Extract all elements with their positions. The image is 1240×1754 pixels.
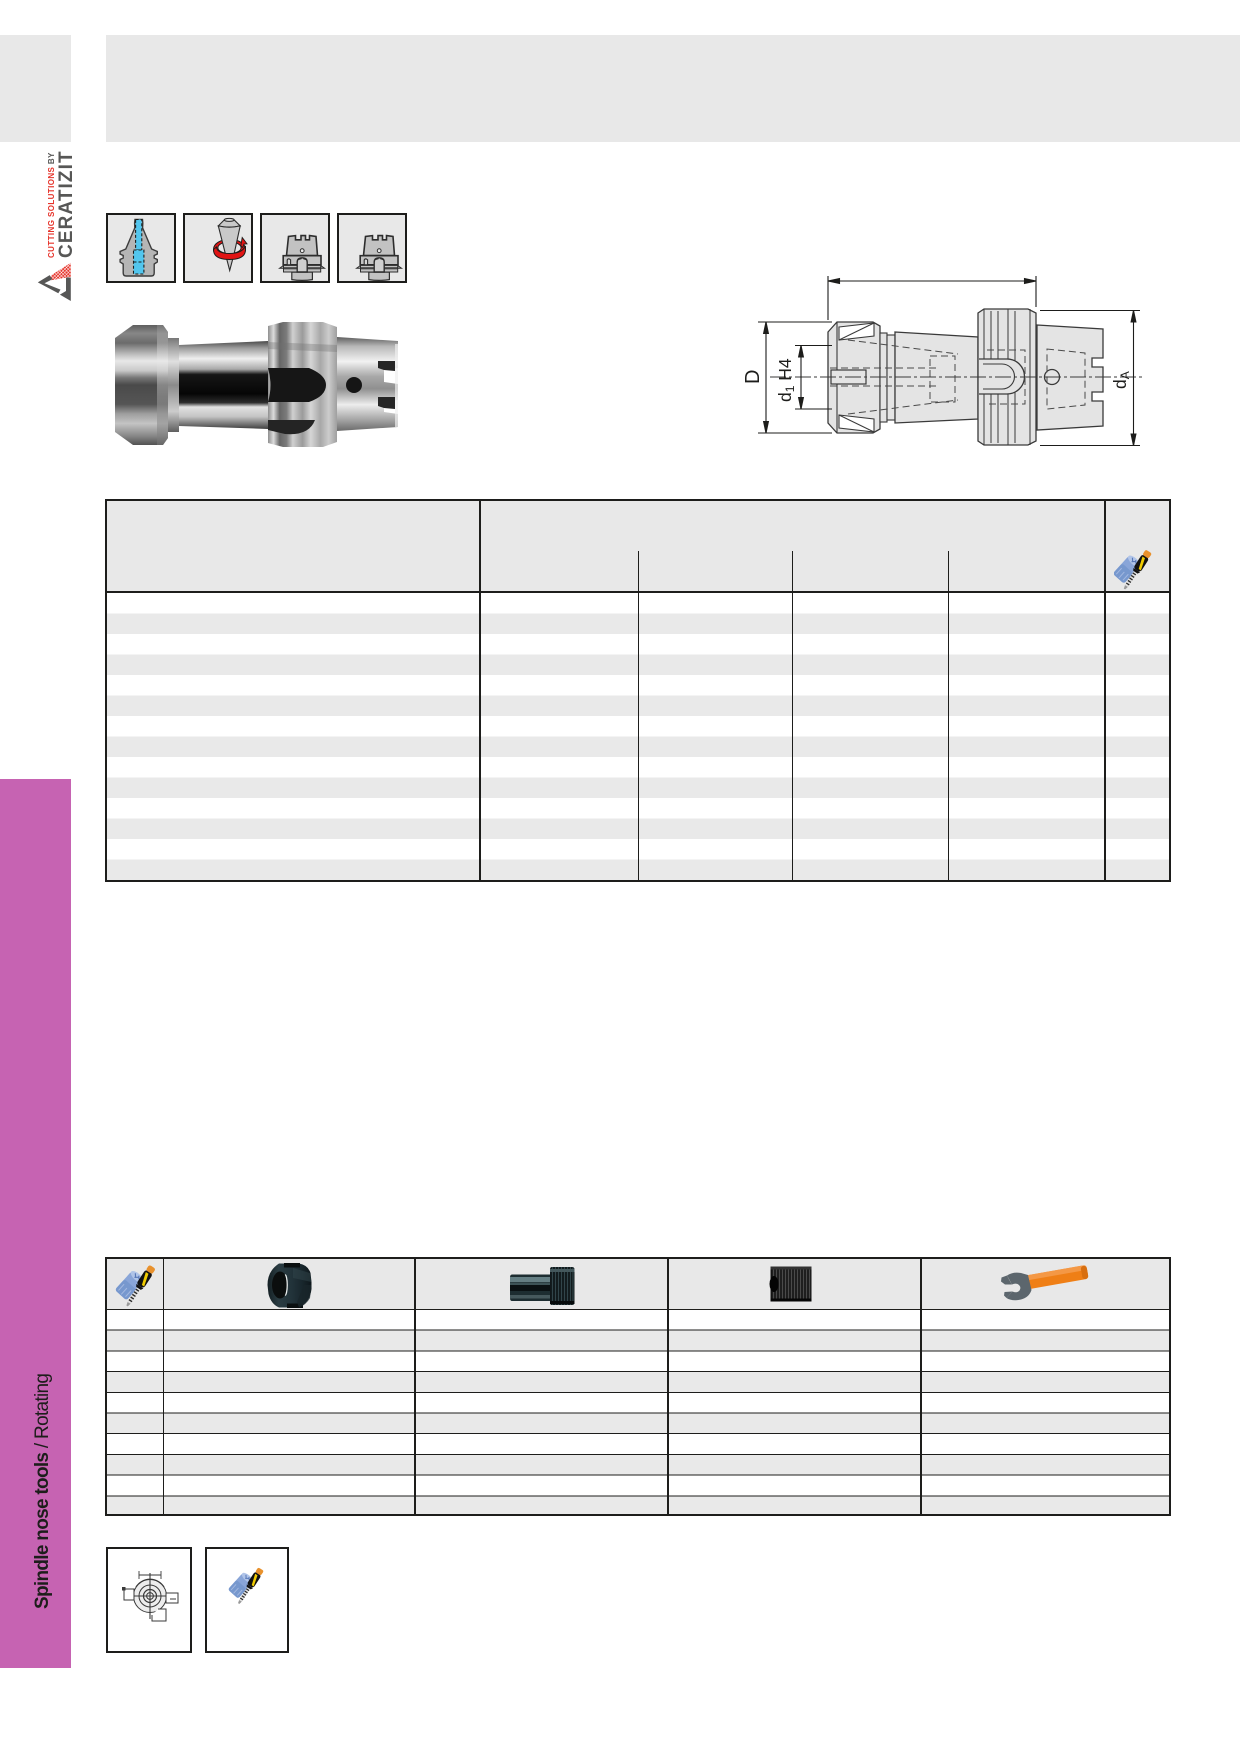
svg-text:dA: dA [1110,371,1132,389]
svg-text:d1 H4: d1 H4 [775,358,797,402]
svg-text:D: D [742,370,764,384]
